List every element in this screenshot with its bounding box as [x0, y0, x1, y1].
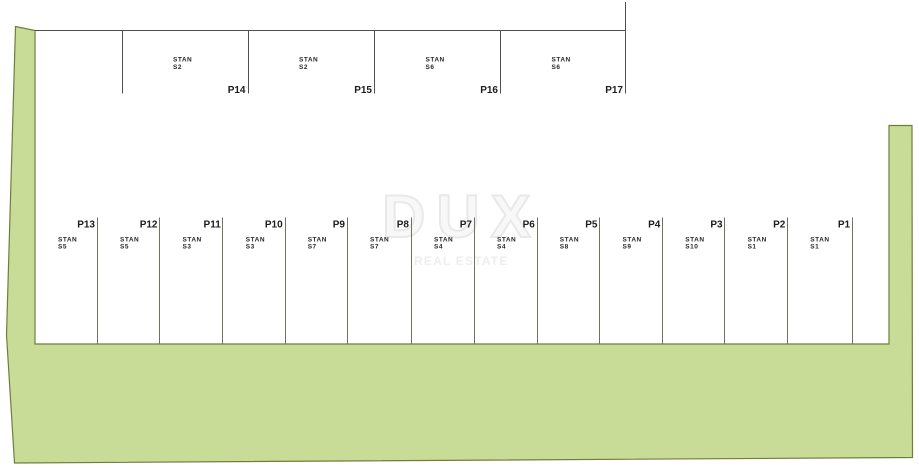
svg-text:P6: P6: [523, 220, 536, 231]
svg-text:P5: P5: [585, 220, 598, 231]
svg-text:STANS2: STANS2: [173, 57, 192, 71]
svg-text:STANS3: STANS3: [246, 237, 265, 251]
svg-text:REAL ESTATE: REAL ESTATE: [414, 254, 509, 268]
svg-text:STANS2: STANS2: [299, 57, 318, 71]
svg-text:P3: P3: [710, 220, 723, 231]
svg-text:P2: P2: [773, 220, 786, 231]
svg-text:P1: P1: [838, 220, 851, 231]
svg-text:STANS3: STANS3: [183, 237, 202, 251]
svg-text:P8: P8: [397, 220, 410, 231]
svg-text:STANS9: STANS9: [623, 237, 642, 251]
svg-text:STANS6: STANS6: [426, 57, 445, 71]
svg-text:DUX: DUX: [382, 183, 542, 250]
svg-text:P11: P11: [204, 220, 222, 231]
svg-text:STANS5: STANS5: [58, 237, 77, 251]
svg-text:STANS1: STANS1: [810, 237, 829, 251]
svg-text:STANS10: STANS10: [685, 237, 704, 251]
svg-text:STANS7: STANS7: [308, 237, 327, 251]
svg-text:P17: P17: [605, 85, 623, 96]
svg-text:P9: P9: [333, 220, 346, 231]
svg-text:STANS5: STANS5: [120, 237, 139, 251]
svg-text:STANS1: STANS1: [748, 237, 767, 251]
svg-text:P4: P4: [648, 220, 661, 231]
svg-text:P10: P10: [265, 220, 283, 231]
svg-text:P12: P12: [140, 220, 158, 231]
svg-text:P14: P14: [228, 85, 246, 96]
svg-text:P7: P7: [460, 220, 473, 231]
svg-text:STANS8: STANS8: [560, 237, 579, 251]
svg-text:STANS6: STANS6: [552, 57, 571, 71]
svg-text:P15: P15: [354, 85, 372, 96]
svg-text:P16: P16: [480, 85, 498, 96]
svg-text:P13: P13: [77, 220, 95, 231]
